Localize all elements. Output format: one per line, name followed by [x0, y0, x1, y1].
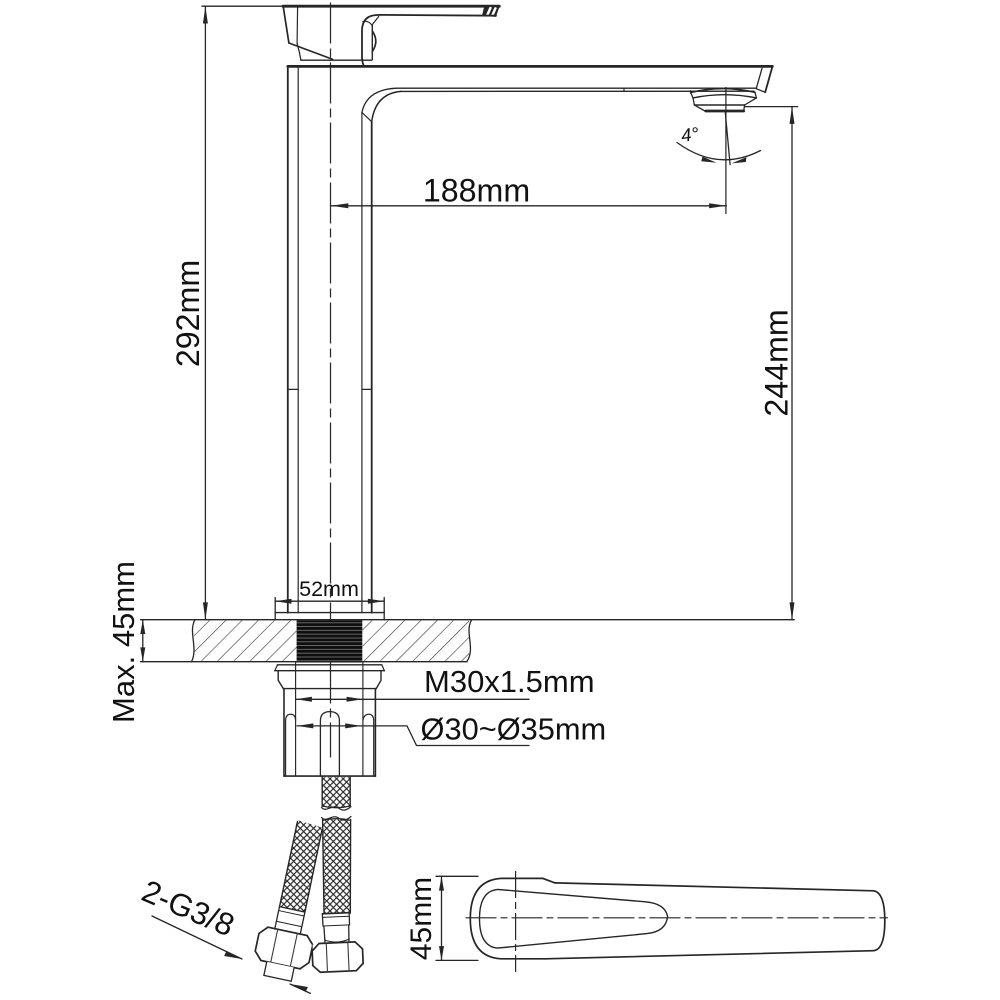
svg-text:292mm: 292mm [170, 260, 206, 367]
svg-text:188mm: 188mm [423, 173, 530, 209]
svg-text:45mm: 45mm [405, 877, 438, 960]
svg-text:Max. 45mm: Max. 45mm [106, 561, 141, 723]
svg-text:52mm: 52mm [299, 577, 359, 601]
svg-text:4°: 4° [680, 123, 700, 146]
svg-text:Ø30~Ø35mm: Ø30~Ø35mm [421, 712, 607, 747]
svg-text:M30x1.5mm: M30x1.5mm [424, 664, 595, 699]
svg-text:244mm: 244mm [759, 309, 795, 416]
